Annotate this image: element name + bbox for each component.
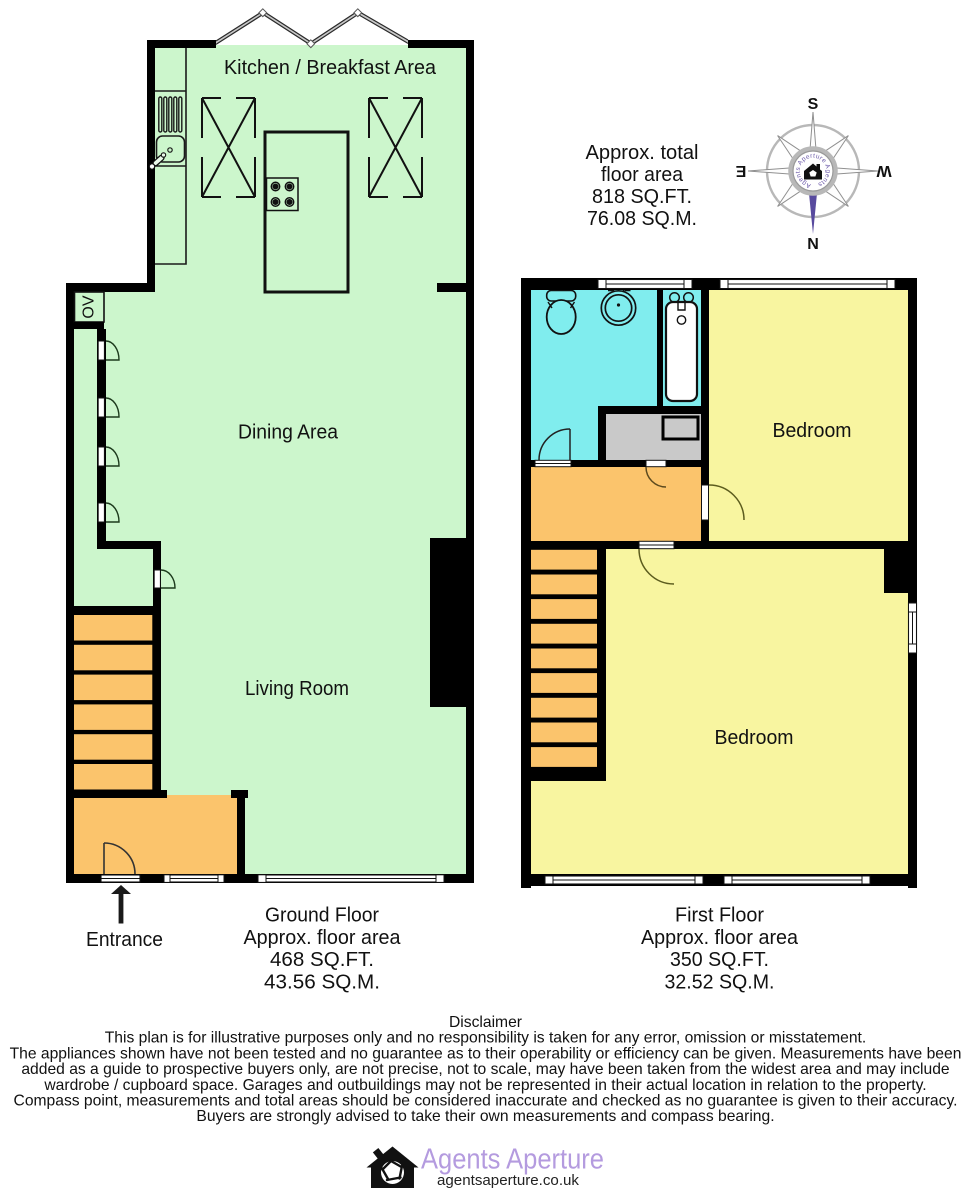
svg-text:32.52 SQ.M.: 32.52 SQ.M. [665, 971, 775, 994]
svg-text:E: E [735, 162, 746, 179]
svg-text:The appliances shown have not: The appliances shown have not been teste… [10, 1045, 962, 1062]
svg-text:Approx. total: Approx. total [586, 141, 699, 164]
svg-text:Compass point, measurements an: Compass point, measurements and total ar… [14, 1093, 958, 1110]
svg-text:S: S [808, 96, 819, 113]
svg-text:Approx. floor area: Approx. floor area [244, 926, 402, 949]
svg-text:This plan is for illustrative: This plan is for illustrative purposes o… [105, 1030, 867, 1047]
svg-text:N: N [807, 236, 819, 253]
svg-text:agentsaperture.co.uk: agentsaperture.co.uk [437, 1173, 580, 1189]
svg-text:Bedroom: Bedroom [715, 726, 794, 749]
svg-text:818 SQ.FT.: 818 SQ.FT. [592, 185, 692, 208]
svg-text:OV: OV [81, 295, 98, 318]
svg-text:350 SQ.FT.: 350 SQ.FT. [670, 948, 769, 971]
svg-text:Bedroom: Bedroom [773, 419, 852, 442]
svg-text:Approx. floor area: Approx. floor area [641, 926, 799, 949]
svg-text:added as a guide to prospectiv: added as a guide to prospective buyers o… [21, 1061, 949, 1078]
svg-text:76.08 SQ.M.: 76.08 SQ.M. [587, 207, 697, 230]
svg-text:468 SQ.FT.: 468 SQ.FT. [270, 948, 374, 971]
svg-text:Disclaimer: Disclaimer [449, 1014, 522, 1031]
svg-text:Dining Area: Dining Area [238, 421, 339, 444]
svg-text:wardrobe / cupboard space. Gar: wardrobe / cupboard space. Garages and o… [43, 1077, 926, 1094]
svg-text:First Floor: First Floor [675, 904, 764, 927]
svg-text:Ground Floor: Ground Floor [265, 904, 379, 927]
svg-text:Agents Aperture: Agents Aperture [421, 1144, 604, 1176]
svg-text:Living Room: Living Room [245, 677, 349, 700]
svg-text:43.56 SQ.M.: 43.56 SQ.M. [264, 971, 380, 994]
svg-text:Entrance: Entrance [86, 928, 163, 951]
svg-text:Buyers are strongly advised to: Buyers are strongly advised to take thei… [196, 1108, 774, 1125]
svg-text:W: W [876, 162, 892, 179]
svg-text:Kitchen / Breakfast Area: Kitchen / Breakfast Area [224, 56, 437, 79]
svg-text:floor area: floor area [601, 163, 684, 186]
